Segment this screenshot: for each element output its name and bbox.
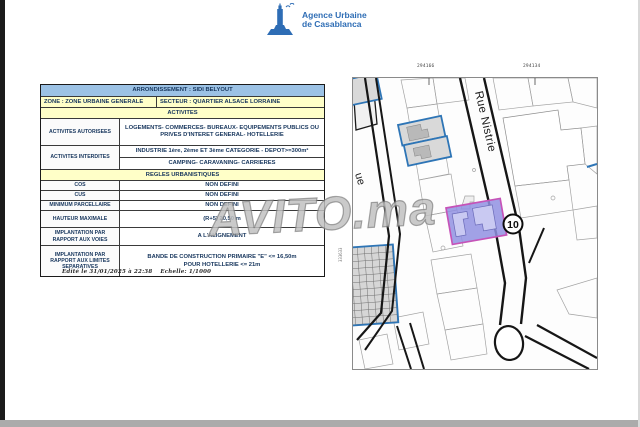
table-row: MINIMUM PARCELLAIRE NON DEFINI <box>41 200 324 210</box>
blue-edge-segment <box>587 164 597 167</box>
route-10-badge: 10 <box>504 215 523 234</box>
minimum-parcellaire-label: MINIMUM PARCELLAIRE <box>41 201 119 210</box>
cos-value: NON DEFINI <box>119 181 324 190</box>
cadastral-map-svg: 10 Rue Nistrie ue <box>353 78 597 369</box>
hauteur-maximale-label: HAUTEUR MAXIMALE <box>41 211 119 227</box>
edition-note: Edité le 31/01/2025 à 22:38Echelle: 1/10… <box>62 269 219 275</box>
table-row: CUS NON DEFINI <box>41 190 324 200</box>
blue-parcel-pair <box>398 116 451 167</box>
activites-autorisees-value: LOGEMENTS- COMMERCES- BUREAUX- EQUIPEMEN… <box>119 119 324 145</box>
activites-interdites-values: INDUSTRIE 1ère, 2ème ET 3ème CATEGORIE -… <box>119 146 324 169</box>
urban-rules-table: ARRONDISSEMENT : SIDI BELYOUT ZONE : ZON… <box>40 84 325 277</box>
arrondissement-title: ARRONDISSEMENT : SIDI BELYOUT <box>41 85 324 96</box>
zone-cell: ZONE : ZONE URBAINE GENERALE <box>41 97 156 107</box>
map-coordinate-top-right: 294134 <box>523 64 540 69</box>
table-row: ZONE : ZONE URBAINE GENERALE SECTEUR : Q… <box>41 96 324 107</box>
table-row: COS NON DEFINI <box>41 180 324 190</box>
coordinate-ticks <box>429 78 535 85</box>
grid-building <box>353 245 398 326</box>
left-border <box>0 0 5 427</box>
document-page: Agence Urbaine de Casablanca ARRONDISSEM… <box>0 0 640 427</box>
agency-logo: Agence Urbaine de Casablanca <box>264 3 367 37</box>
table-row: IMPLANTATION PAR RAPPORT AUX VOIES A L'A… <box>41 227 324 245</box>
roundabout <box>493 324 525 362</box>
edit-date: Edité le 31/01/2025 à 22:38 <box>62 269 152 275</box>
table-row: REGLES URBANISTIQUES <box>41 169 324 180</box>
table-row: ARRONDISSEMENT : SIDI BELYOUT <box>41 85 324 96</box>
implantation-limites-line2: POUR HOTELLERIE <= 21m <box>147 262 296 269</box>
activites-interdites-value2: CAMPING- CARAVANING- CARRIERES <box>120 157 324 169</box>
implantation-voies-value: A L'ALIGNEMENT <box>119 228 324 245</box>
table-row: ACTIVITES INTERDITES INDUSTRIE 1ère, 2èm… <box>41 145 324 169</box>
regles-section-header: REGLES URBANISTIQUES <box>41 170 324 180</box>
secteur-cell: SECTEUR : QUARTIER ALSACE LORRAINE <box>156 97 324 107</box>
cus-label: CUS <box>41 191 119 200</box>
minimum-parcellaire-value: NON DEFINI <box>119 201 324 210</box>
cus-value: NON DEFINI <box>119 191 324 200</box>
scale-note: Echelle: 1/1000 <box>160 269 211 275</box>
table-row: ACTIVITES AUTORISEES LOGEMENTS- COMMERCE… <box>41 118 324 145</box>
table-row: ACTIVITES <box>41 107 324 118</box>
activites-interdites-value1: INDUSTRIE 1ère, 2ème ET 3ème CATEGORIE -… <box>120 146 324 157</box>
map-coordinate-left: 333633 <box>338 248 343 262</box>
activites-autorisees-label: ACTIVITES AUTORISEES <box>41 119 119 145</box>
map-coordinate-top-left: 294166 <box>417 64 434 69</box>
bottom-border <box>0 420 640 427</box>
agency-name-line2: de Casablanca <box>302 20 367 29</box>
activites-interdites-label: ACTIVITES INTERDITES <box>41 146 119 169</box>
street-name-partial-label: ue <box>353 171 367 186</box>
implantation-voies-label: IMPLANTATION PAR RAPPORT AUX VOIES <box>41 228 119 245</box>
cadastral-map: 10 Rue Nistrie ue <box>352 77 598 370</box>
hauteur-maximale-value: (R+5) 20,50 m <box>119 211 324 227</box>
table-row: HAUTEUR MAXIMALE (R+5) 20,50 m <box>41 210 324 227</box>
cos-label: COS <box>41 181 119 190</box>
agency-name: Agence Urbaine de Casablanca <box>302 11 367 30</box>
route-number-label: 10 <box>507 219 519 231</box>
implantation-limites-line1: BANDE DE CONSTRUCTION PRIMAIRE "E" <= 16… <box>147 254 296 261</box>
activites-section-header: ACTIVITES <box>41 108 324 118</box>
minaret-logo-icon <box>264 3 296 37</box>
